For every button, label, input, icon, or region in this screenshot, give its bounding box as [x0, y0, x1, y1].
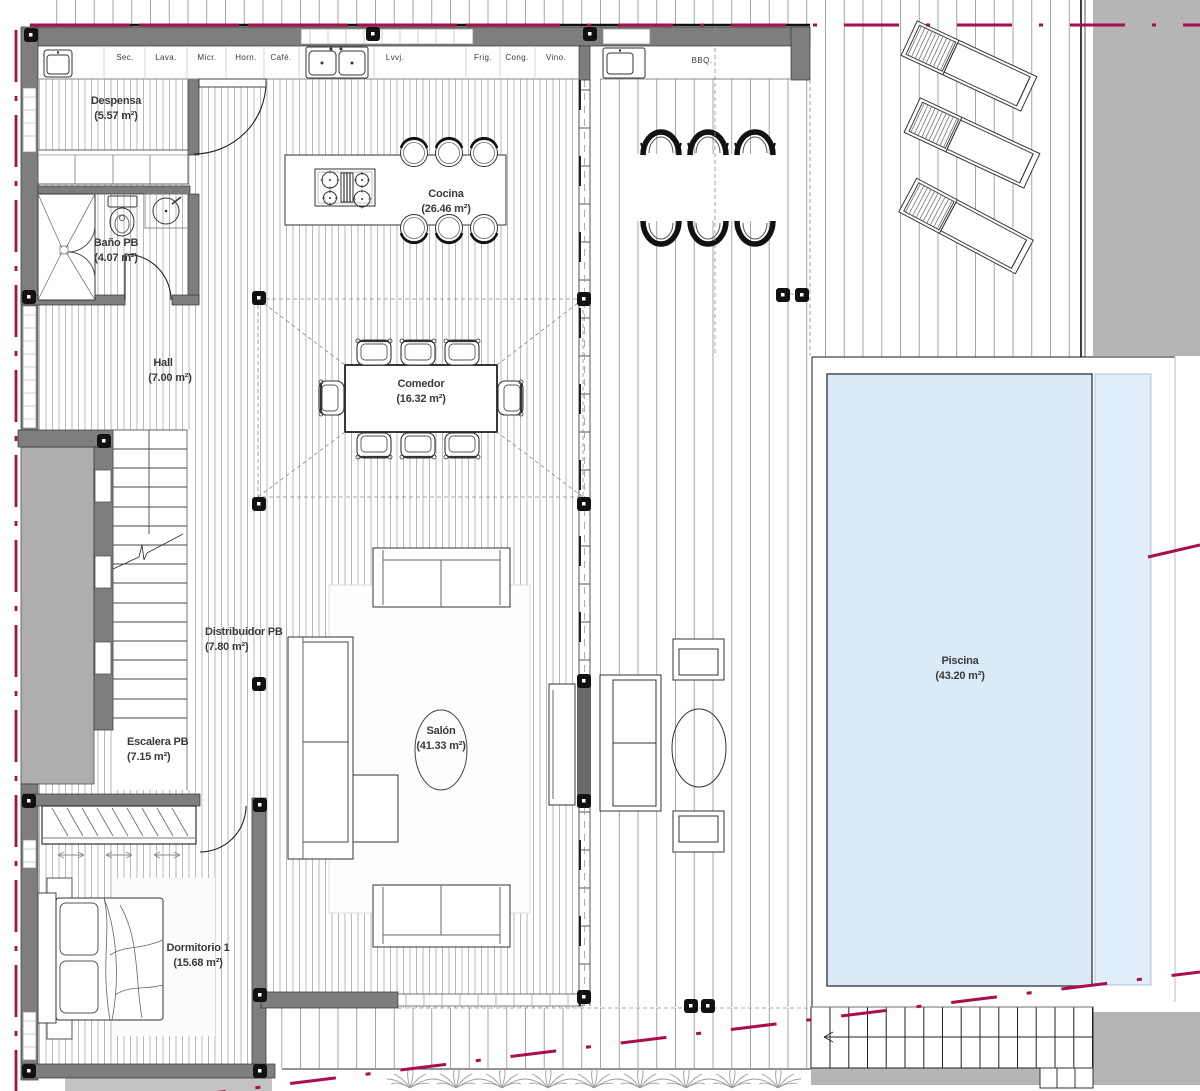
svg-text:(7.00 m²): (7.00 m²)	[148, 372, 192, 384]
svg-text:Cocina: Cocina	[428, 188, 465, 200]
svg-text:Lava.: Lava.	[155, 53, 177, 62]
svg-text:Cong.: Cong.	[505, 53, 528, 62]
svg-text:Distribuidor PB: Distribuidor PB	[205, 626, 283, 638]
svg-text:Salón: Salón	[427, 725, 456, 737]
svg-text:Baño PB: Baño PB	[94, 237, 139, 249]
svg-text:(16.32 m²): (16.32 m²)	[396, 393, 446, 405]
svg-text:Café.: Café.	[270, 53, 291, 62]
svg-text:(7.15 m²): (7.15 m²)	[127, 751, 171, 763]
svg-text:(26.46 m²): (26.46 m²)	[421, 203, 471, 215]
svg-text:Hall: Hall	[153, 357, 173, 369]
svg-text:Piscina: Piscina	[941, 655, 979, 667]
svg-text:Frig.: Frig.	[474, 53, 492, 62]
svg-text:(4.07 m²): (4.07 m²)	[94, 252, 138, 264]
svg-text:(7.80 m²): (7.80 m²)	[205, 641, 249, 653]
svg-text:(15.68 m²): (15.68 m²)	[173, 957, 223, 969]
svg-text:Micr.: Micr.	[198, 53, 217, 62]
svg-text:Vino.: Vino.	[546, 53, 566, 62]
svg-text:Lvvj.: Lvvj.	[386, 53, 404, 62]
svg-text:Dormitorio 1: Dormitorio 1	[167, 942, 230, 954]
svg-text:Escalera PB: Escalera PB	[127, 736, 189, 748]
svg-text:(5.57 m²): (5.57 m²)	[94, 110, 138, 122]
svg-text:Horn.: Horn.	[235, 53, 257, 62]
svg-text:(43.20 m²): (43.20 m²)	[935, 670, 985, 682]
svg-text:Comedor: Comedor	[398, 378, 446, 390]
svg-text:(41.33 m²): (41.33 m²)	[416, 740, 466, 752]
svg-text:Sec.: Sec.	[116, 53, 134, 62]
svg-text:BBQ.: BBQ.	[692, 56, 713, 65]
svg-text:Despensa: Despensa	[91, 95, 142, 107]
